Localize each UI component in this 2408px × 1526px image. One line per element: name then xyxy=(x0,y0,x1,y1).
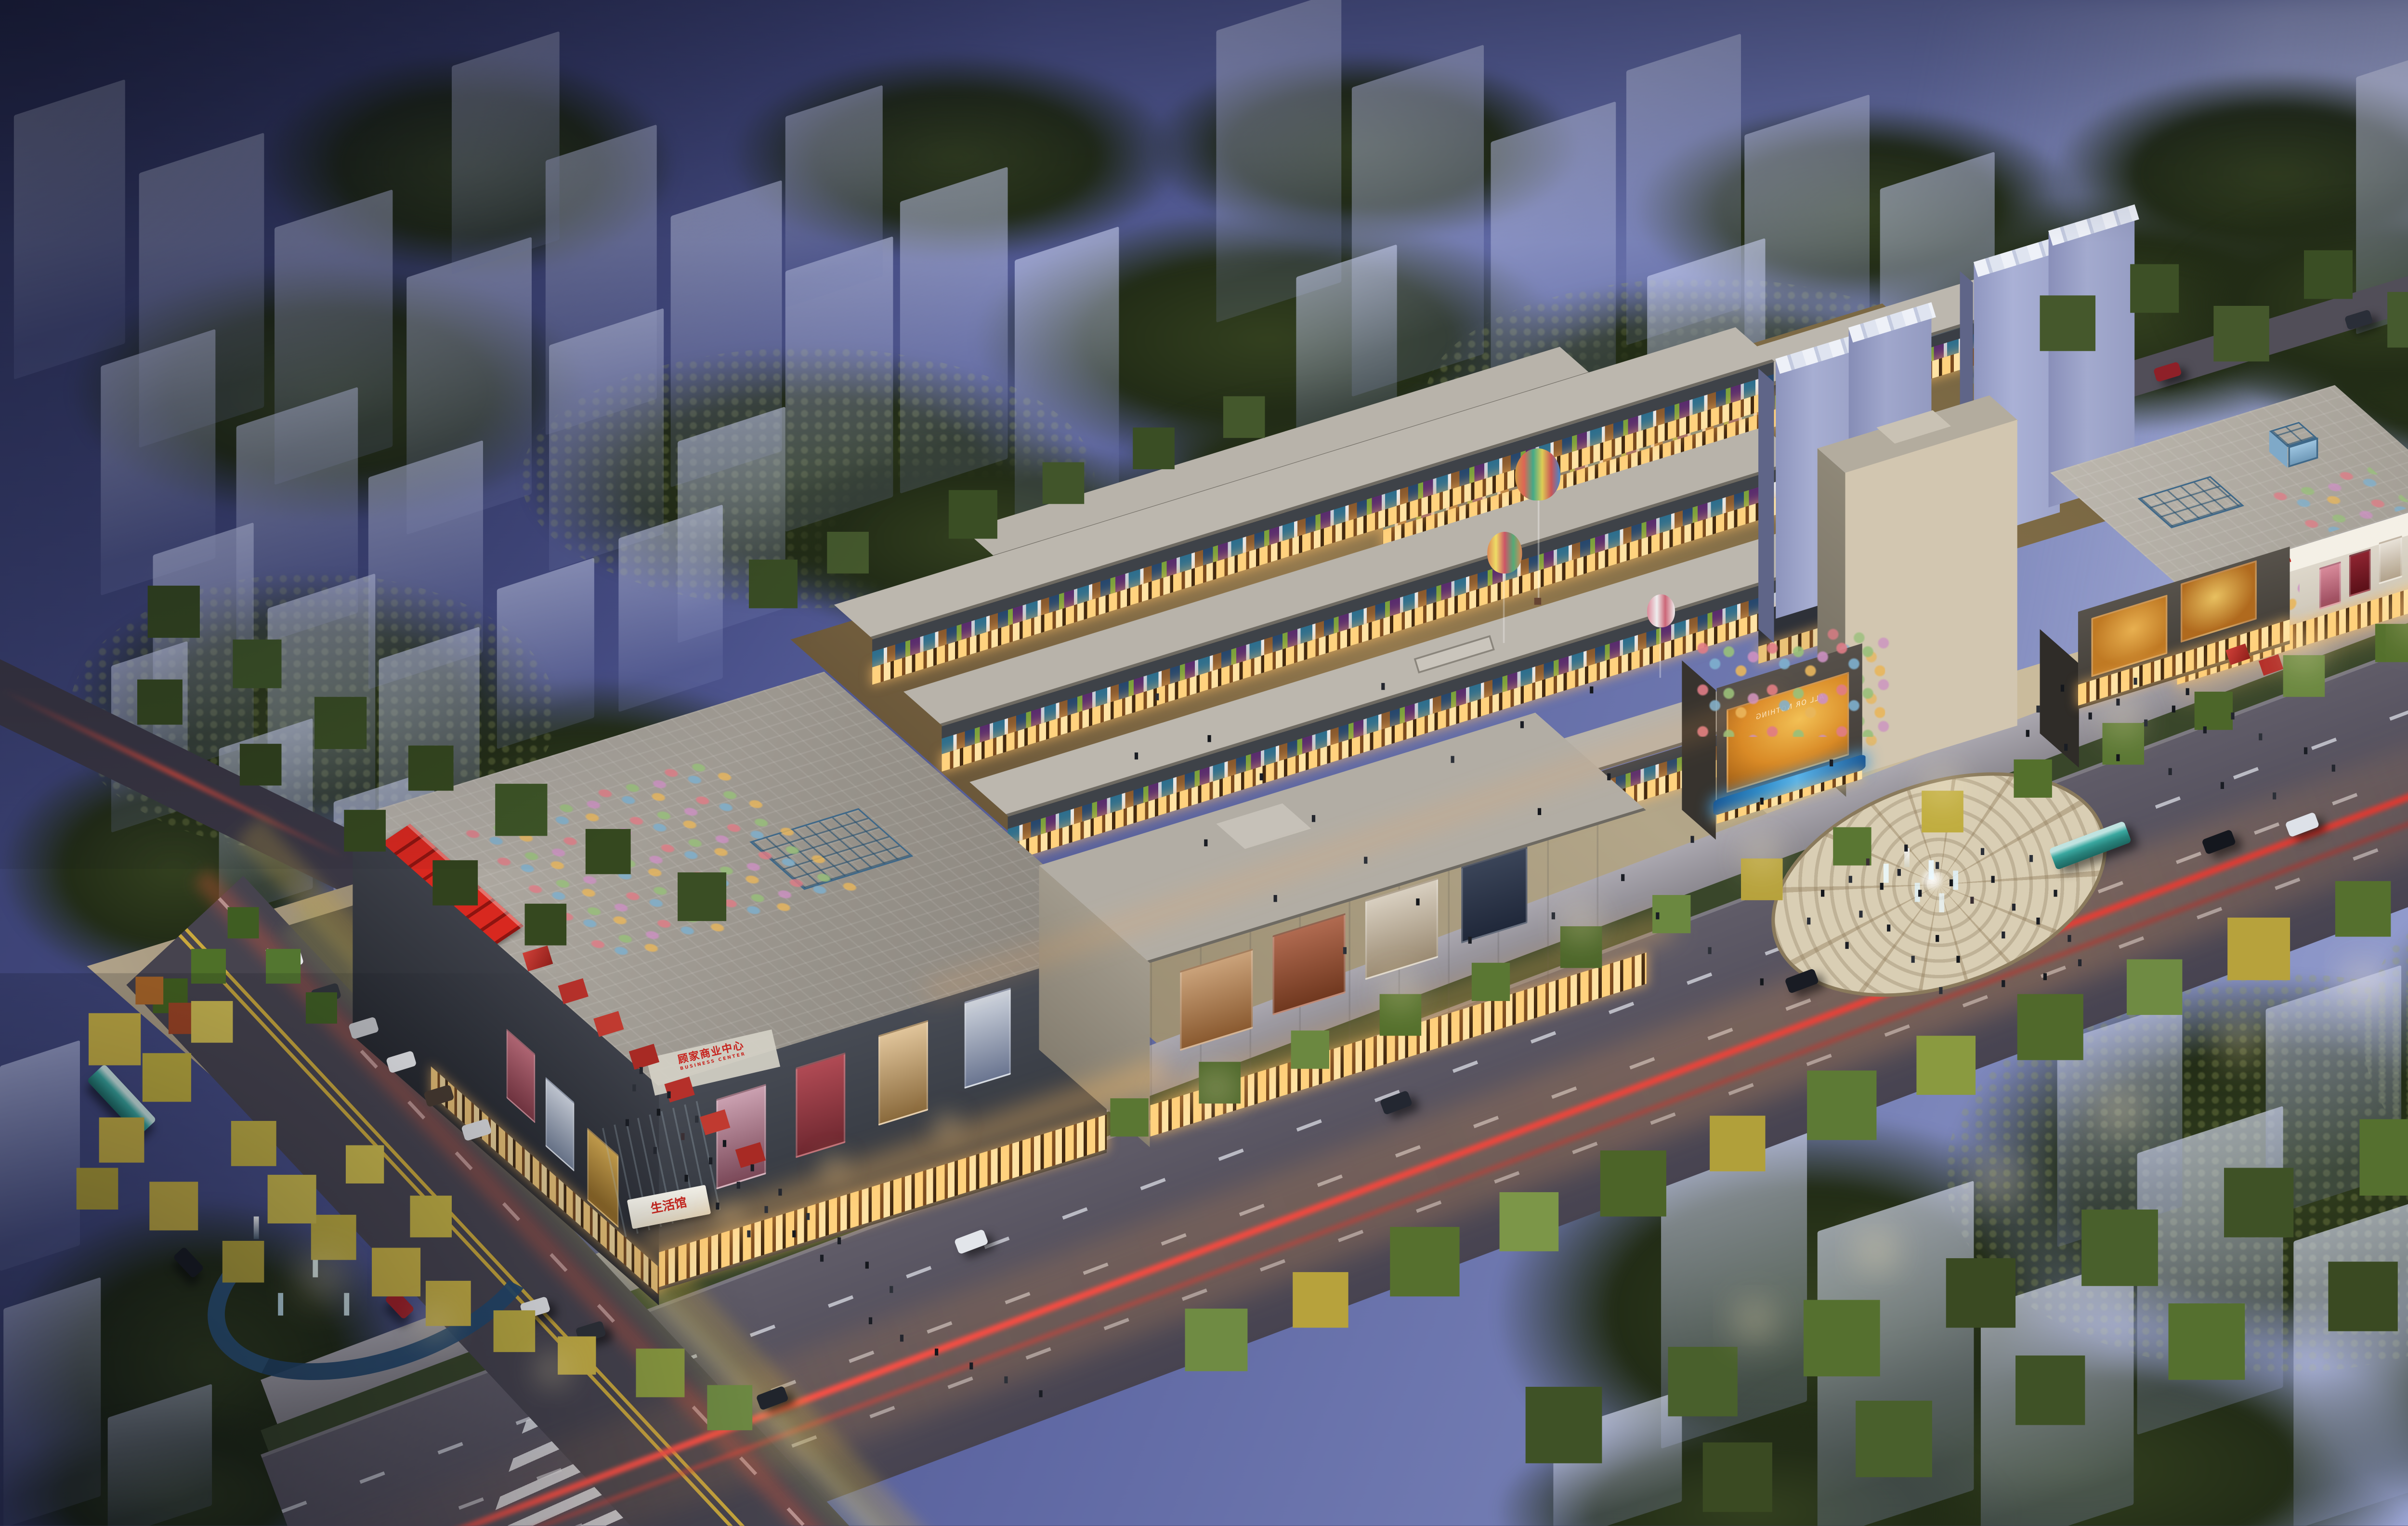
fountain-jets xyxy=(1904,848,1909,868)
vignette-bottomleft xyxy=(0,973,903,1526)
fountain-center-glow xyxy=(1922,869,1942,890)
crowd-plaza xyxy=(1835,866,1838,872)
aerial-rendering: ALL OR NOTHING 顾家商业中心 BUS xyxy=(0,0,2408,1526)
crowd-right-sidewalk xyxy=(2012,692,2015,698)
vignette-topleft xyxy=(0,0,1216,869)
